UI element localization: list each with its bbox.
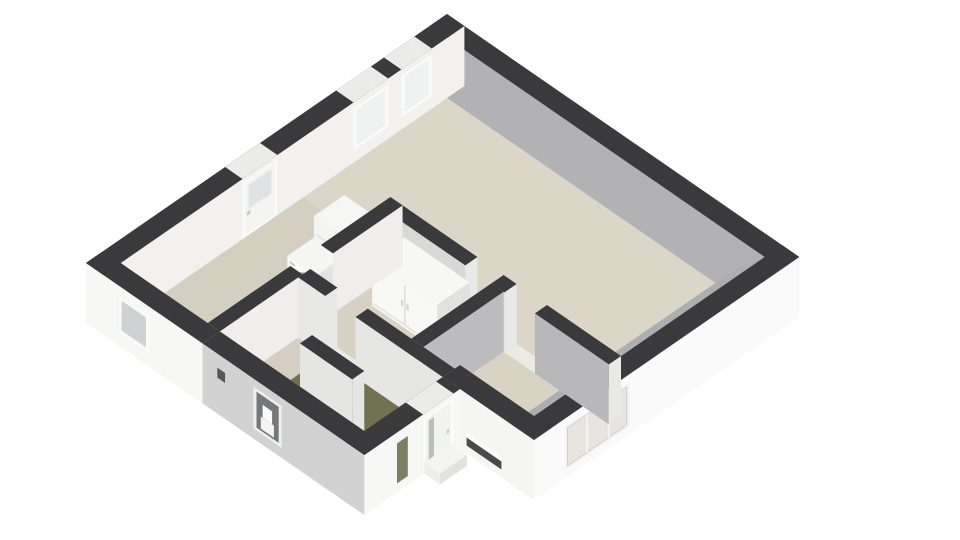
floorplan-svg xyxy=(0,0,960,540)
floorplan-page xyxy=(0,0,960,540)
wall-living-south-b-face-east xyxy=(504,284,516,352)
sidelight-glass xyxy=(397,436,408,484)
wall-bedroom-north-face-east xyxy=(609,356,621,424)
